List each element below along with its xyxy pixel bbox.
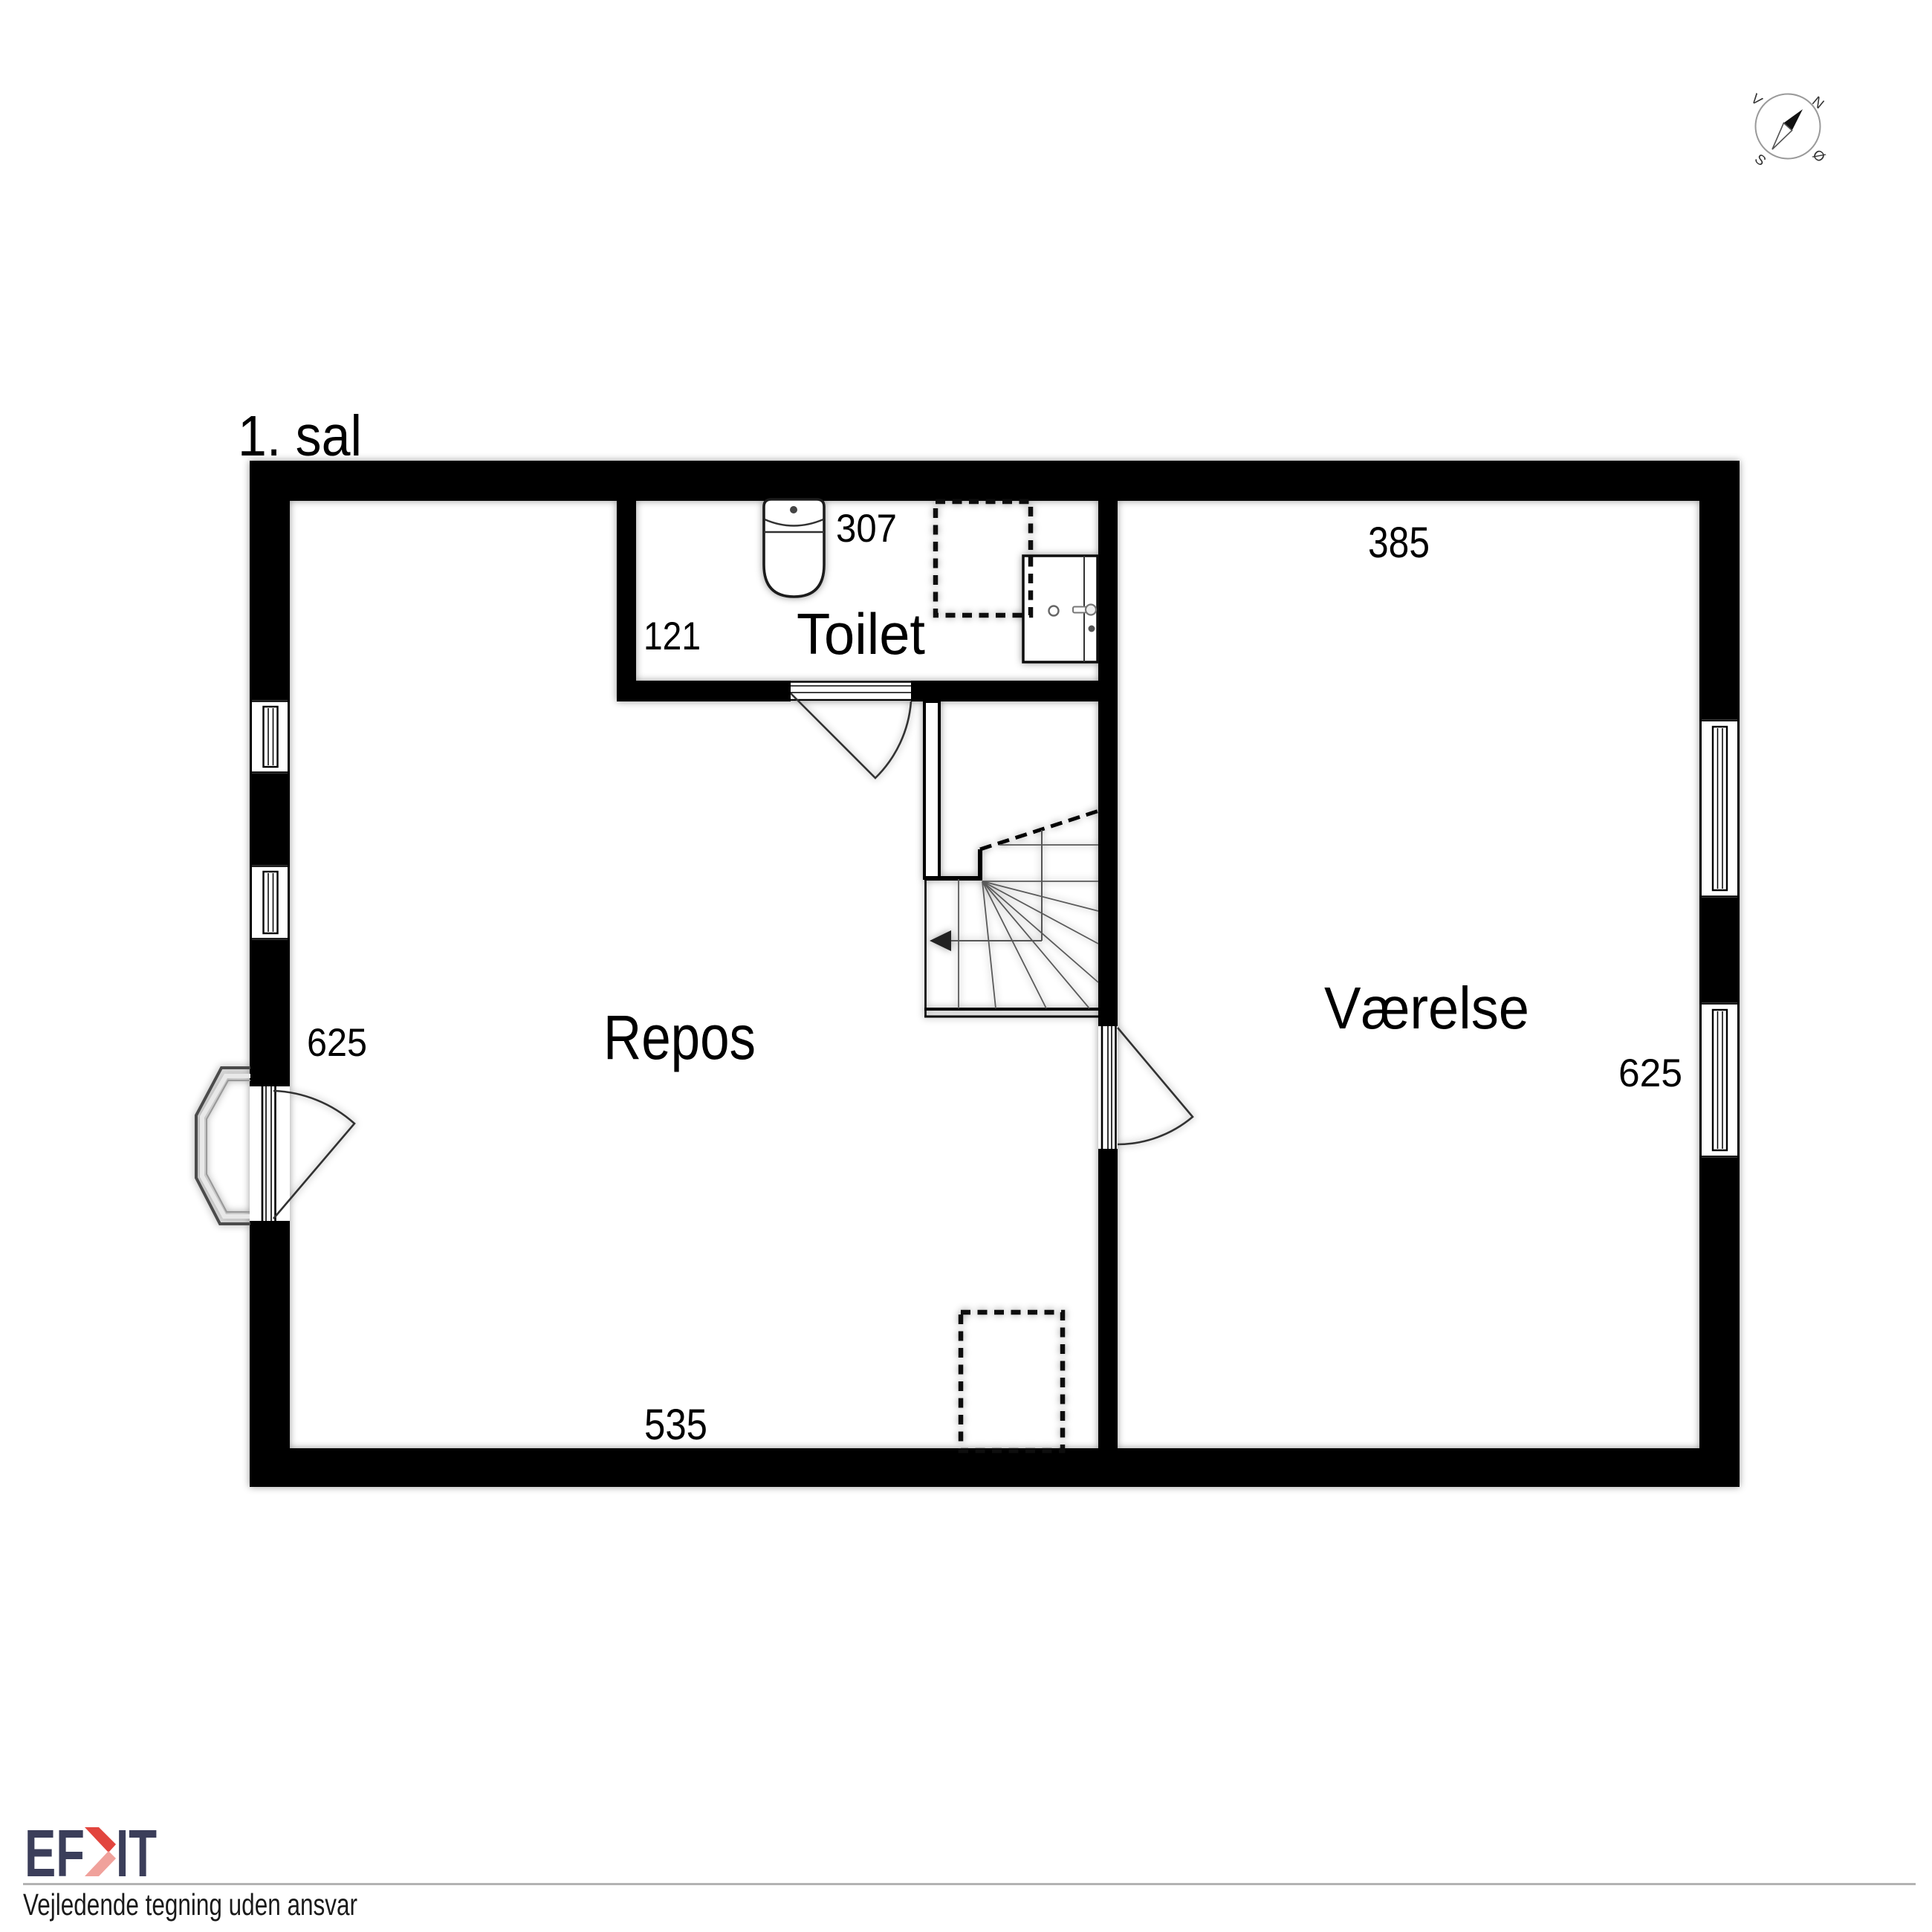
svg-text:535: 535: [644, 1401, 707, 1449]
svg-text:S: S: [1751, 152, 1769, 169]
svg-text:385: 385: [1368, 519, 1430, 567]
svg-text:Ø: Ø: [1809, 147, 1828, 166]
svg-text:1. sal: 1. sal: [238, 404, 362, 468]
svg-text:Repos: Repos: [603, 1002, 756, 1072]
svg-text:121: 121: [644, 615, 701, 658]
svg-text:625: 625: [1618, 1051, 1682, 1095]
svg-text:Vejledende tegning uden ansvar: Vejledende tegning uden ansvar: [23, 1887, 357, 1922]
svg-text:Toilet: Toilet: [797, 601, 925, 667]
svg-text:IT: IT: [116, 1817, 157, 1891]
svg-text:Værelse: Værelse: [1324, 975, 1529, 1041]
svg-text:EF: EF: [25, 1817, 85, 1891]
svg-text:N: N: [1809, 94, 1826, 112]
svg-text:307: 307: [836, 507, 897, 551]
svg-text:625: 625: [307, 1021, 367, 1065]
